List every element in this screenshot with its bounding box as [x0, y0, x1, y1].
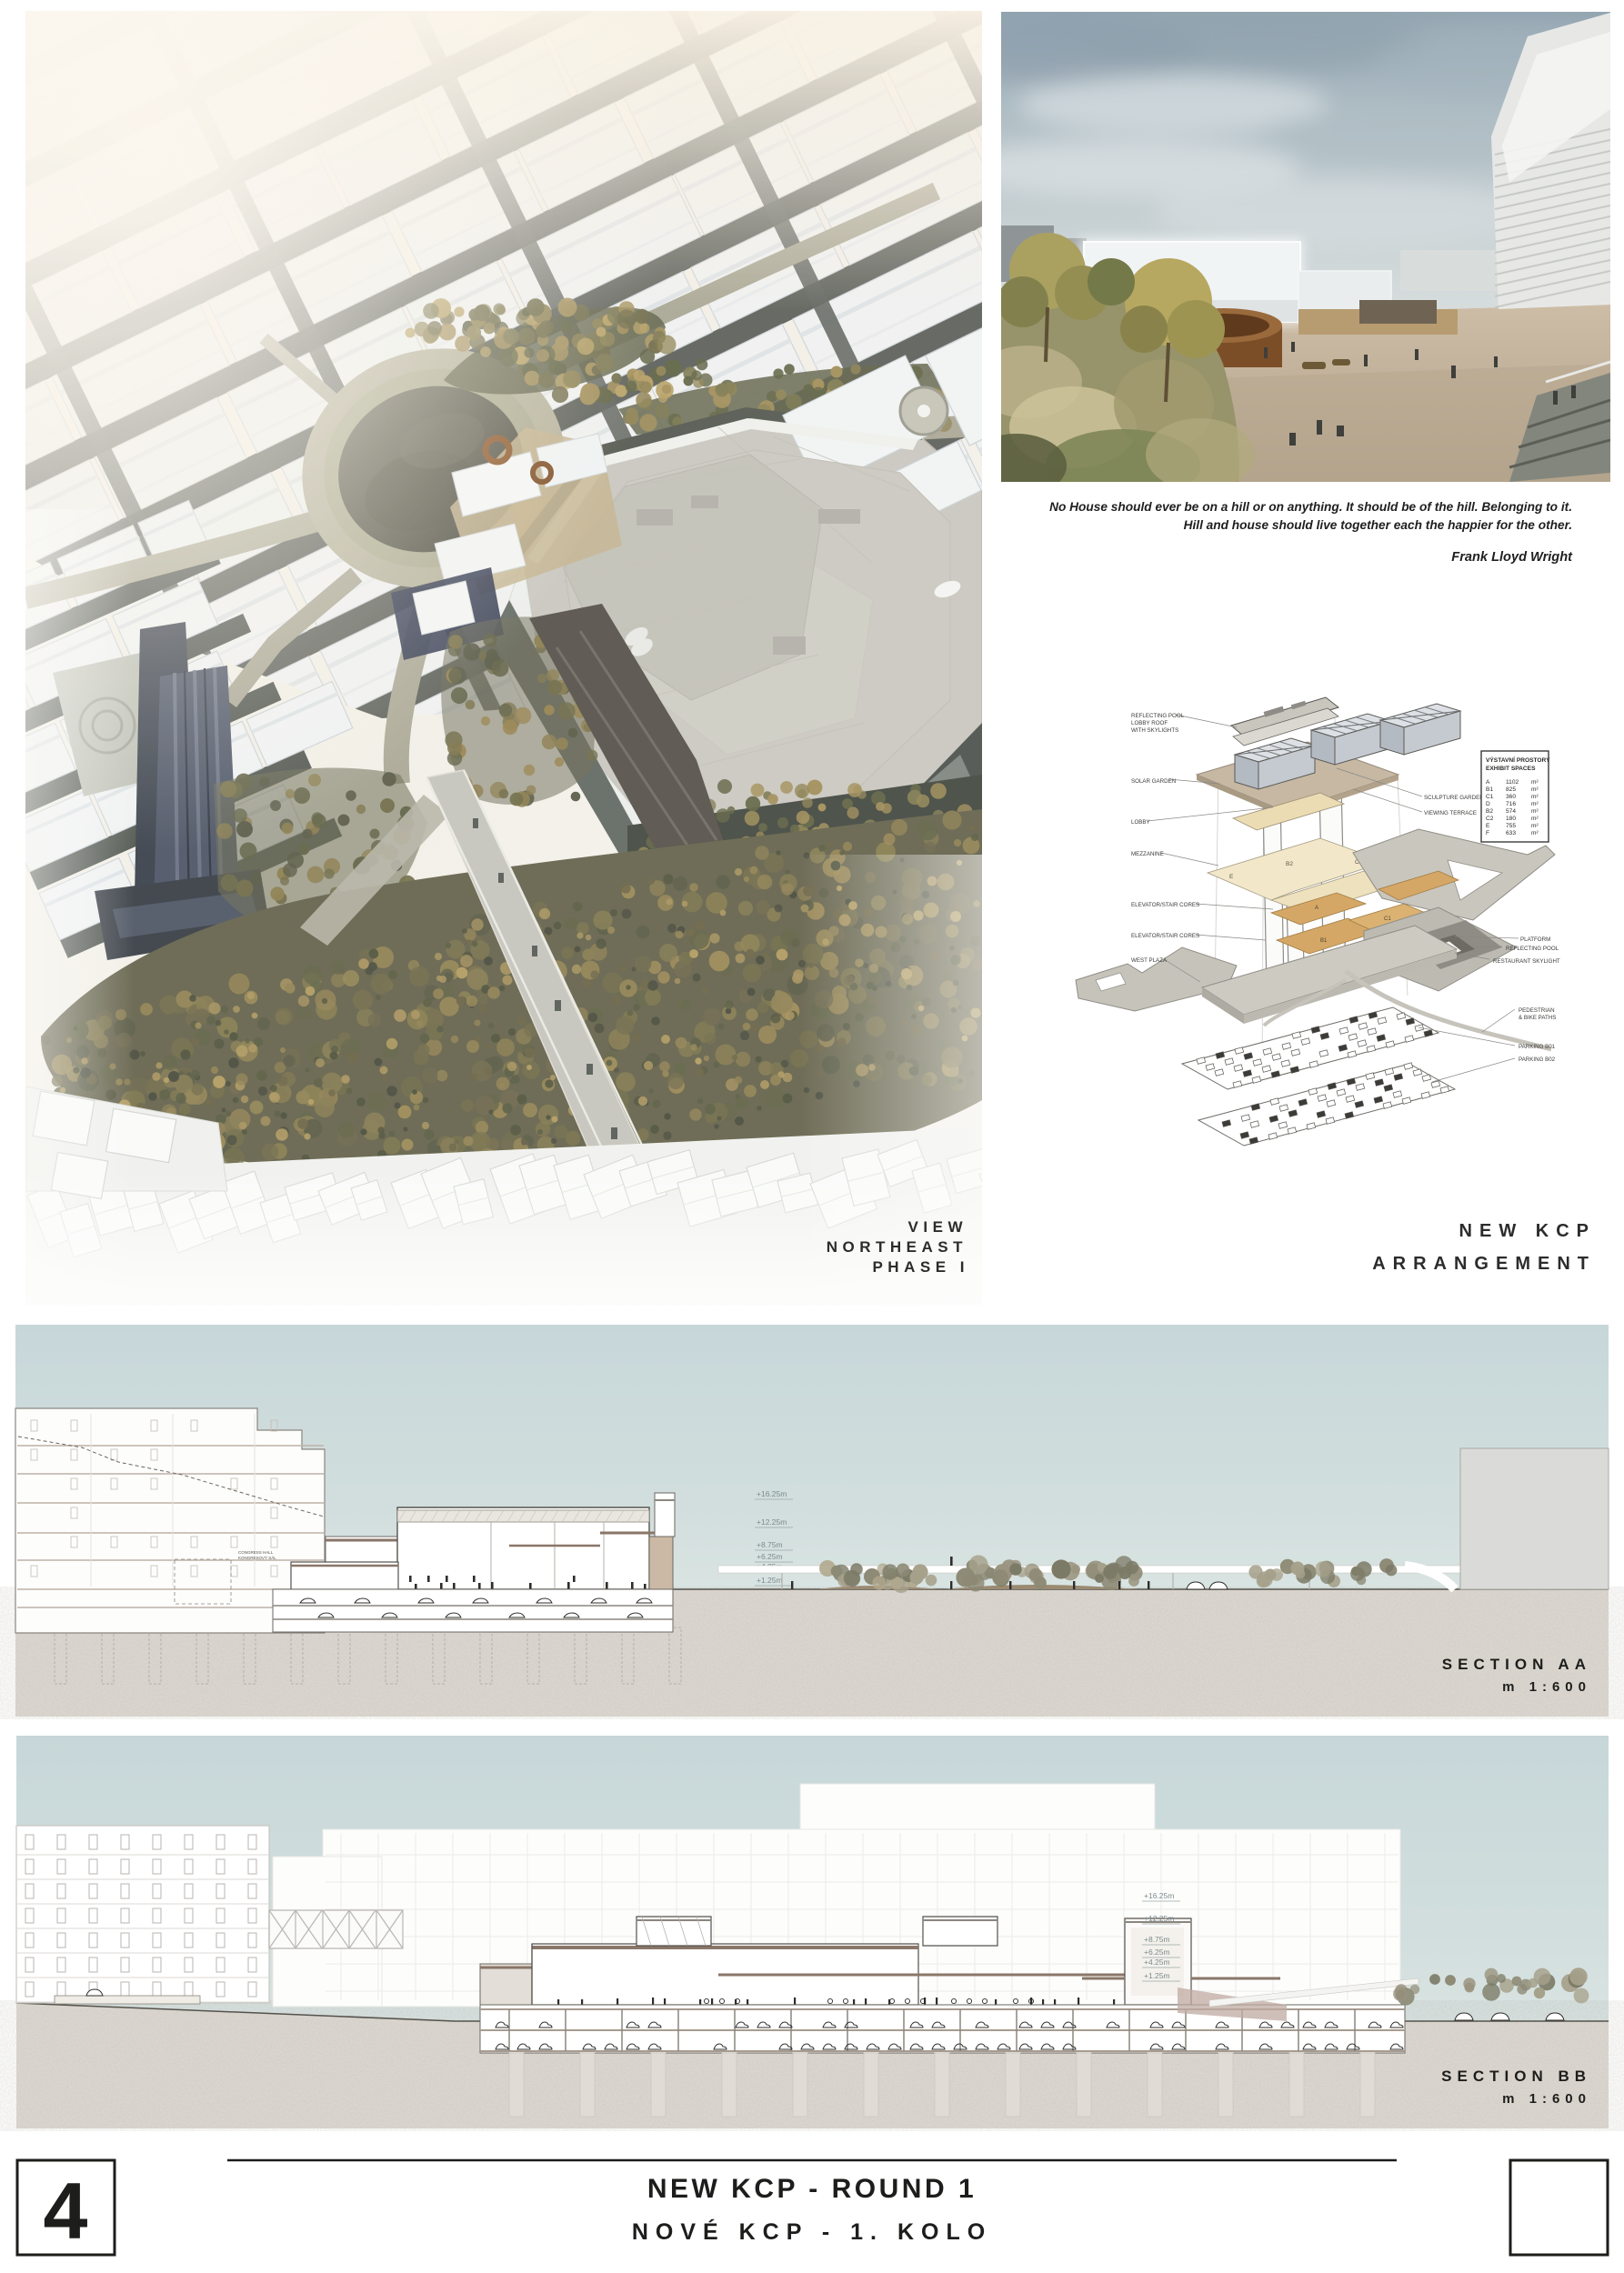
svg-text:NEW KCP: NEW KCP	[1459, 1221, 1596, 1241]
svg-text:+1.25m: +1.25m	[757, 1576, 783, 1585]
svg-text:D: D	[1486, 801, 1490, 807]
svg-text:E: E	[1229, 874, 1234, 880]
svg-text:+12.25m: +12.25m	[757, 1517, 787, 1527]
svg-text:A: A	[1486, 779, 1490, 786]
svg-text:m²: m²	[1531, 823, 1539, 829]
svg-text:m²: m²	[1531, 786, 1539, 793]
svg-text:B2: B2	[1286, 861, 1293, 867]
svg-text:RESTAURANT SKYLIGHT: RESTAURANT SKYLIGHT	[1493, 958, 1560, 965]
svg-text:m²: m²	[1531, 794, 1539, 800]
svg-text:+8.75m: +8.75m	[1144, 1935, 1170, 1944]
svg-text:VIEWING TERRACE: VIEWING TERRACE	[1424, 810, 1477, 816]
svg-text:m 1:600: m 1:600	[1502, 2091, 1591, 2107]
svg-text:KONGRESOVÝ SÁL: KONGRESOVÝ SÁL	[238, 1555, 276, 1560]
svg-text:4: 4	[44, 2166, 88, 2256]
svg-text:+1.25m: +1.25m	[1144, 1971, 1170, 1980]
svg-text:+6.25m: +6.25m	[1144, 1948, 1170, 1957]
svg-text:1102: 1102	[1506, 779, 1519, 786]
svg-text:+12.25m: +12.25m	[1144, 1914, 1174, 1923]
svg-text:& BIKE PATHS: & BIKE PATHS	[1519, 1015, 1556, 1021]
svg-text:755: 755	[1506, 823, 1516, 829]
svg-text:825: 825	[1506, 786, 1516, 793]
svg-text:+8.75m: +8.75m	[757, 1540, 783, 1549]
svg-text:ARRANGEMENT: ARRANGEMENT	[1372, 1254, 1596, 1274]
svg-text:+16.25m: +16.25m	[1144, 1891, 1174, 1900]
svg-text:WEST PLAZA: WEST PLAZA	[1131, 957, 1168, 964]
svg-text:+6.25m: +6.25m	[757, 1552, 783, 1561]
svg-text:ELEVATOR/STAIR CORES: ELEVATOR/STAIR CORES	[1131, 902, 1199, 908]
svg-text:REFLECTING POOL: REFLECTING POOL	[1131, 713, 1185, 719]
svg-text:MEZZANINE: MEZZANINE	[1131, 851, 1164, 857]
svg-text:m²: m²	[1531, 816, 1539, 822]
svg-text:m 1:600: m 1:600	[1502, 1679, 1591, 1695]
svg-text:180: 180	[1506, 816, 1516, 822]
svg-text:PEDESTRIAN: PEDESTRIAN	[1519, 1007, 1555, 1014]
svg-text:VIEW: VIEW	[908, 1218, 967, 1236]
svg-text:CONGRESS HALL: CONGRESS HALL	[238, 1550, 274, 1555]
svg-text:PARKING B02: PARKING B02	[1519, 1056, 1556, 1063]
svg-text:C1: C1	[1384, 916, 1391, 922]
svg-text:360: 360	[1506, 794, 1516, 800]
svg-text:NORTHEAST: NORTHEAST	[827, 1238, 967, 1256]
svg-text:574: 574	[1506, 808, 1516, 815]
svg-text:Hill and house should live tog: Hill and house should live together each…	[1184, 518, 1572, 532]
svg-text:C1: C1	[1486, 794, 1494, 800]
svg-text:633: 633	[1506, 830, 1516, 836]
svg-text:PLATFORM: PLATFORM	[1520, 936, 1550, 943]
svg-text:m²: m²	[1531, 801, 1539, 807]
svg-text:+16.25m: +16.25m	[757, 1489, 787, 1498]
svg-text:SECTION AA: SECTION AA	[1442, 1656, 1591, 1673]
svg-text:B1: B1	[1320, 938, 1328, 944]
svg-text:SECTION BB: SECTION BB	[1441, 2068, 1591, 2085]
svg-text:NOVÉ KCP - 1. KOLO: NOVÉ KCP - 1. KOLO	[632, 2218, 992, 2245]
svg-text:PHASE I: PHASE I	[872, 1258, 969, 1276]
svg-text:C2: C2	[1486, 816, 1494, 822]
svg-text:PARKING B01: PARKING B01	[1519, 1044, 1556, 1050]
svg-text:m²: m²	[1531, 830, 1539, 836]
svg-text:ELEVATOR/STAIR CORES: ELEVATOR/STAIR CORES	[1131, 933, 1199, 939]
svg-text:+4.25m: +4.25m	[1144, 1958, 1170, 1967]
svg-text:VÝSTAVNÍ PROSTORY: VÝSTAVNÍ PROSTORY	[1486, 756, 1550, 764]
svg-text:SCULPTURE GARDEN: SCULPTURE GARDEN	[1424, 795, 1484, 801]
svg-text:F: F	[1486, 830, 1489, 836]
svg-text:REFLECTING POOL: REFLECTING POOL	[1506, 946, 1559, 952]
svg-text:SOLAR GARDEN: SOLAR GARDEN	[1131, 778, 1176, 785]
svg-text:EXHIBIT SPACES: EXHIBIT SPACES	[1486, 766, 1536, 772]
svg-text:WITH SKYLIGHTS: WITH SKYLIGHTS	[1131, 727, 1178, 734]
svg-text:LOBBY ROOF: LOBBY ROOF	[1131, 720, 1168, 726]
svg-text:E: E	[1486, 823, 1490, 829]
svg-text:Frank Lloyd Wright: Frank Lloyd Wright	[1451, 550, 1573, 565]
svg-text:B1: B1	[1486, 786, 1493, 793]
svg-text:m²: m²	[1531, 808, 1539, 815]
svg-text:B2: B2	[1486, 808, 1493, 815]
svg-text:LOBBY: LOBBY	[1131, 819, 1150, 826]
svg-text:NEW KCP - ROUND 1: NEW KCP - ROUND 1	[647, 2174, 977, 2204]
svg-text:m²: m²	[1531, 779, 1539, 786]
svg-text:No House should ever be on a h: No House should ever be on a hill or on …	[1049, 500, 1572, 514]
svg-text:A: A	[1315, 906, 1318, 911]
svg-text:716: 716	[1506, 801, 1516, 807]
